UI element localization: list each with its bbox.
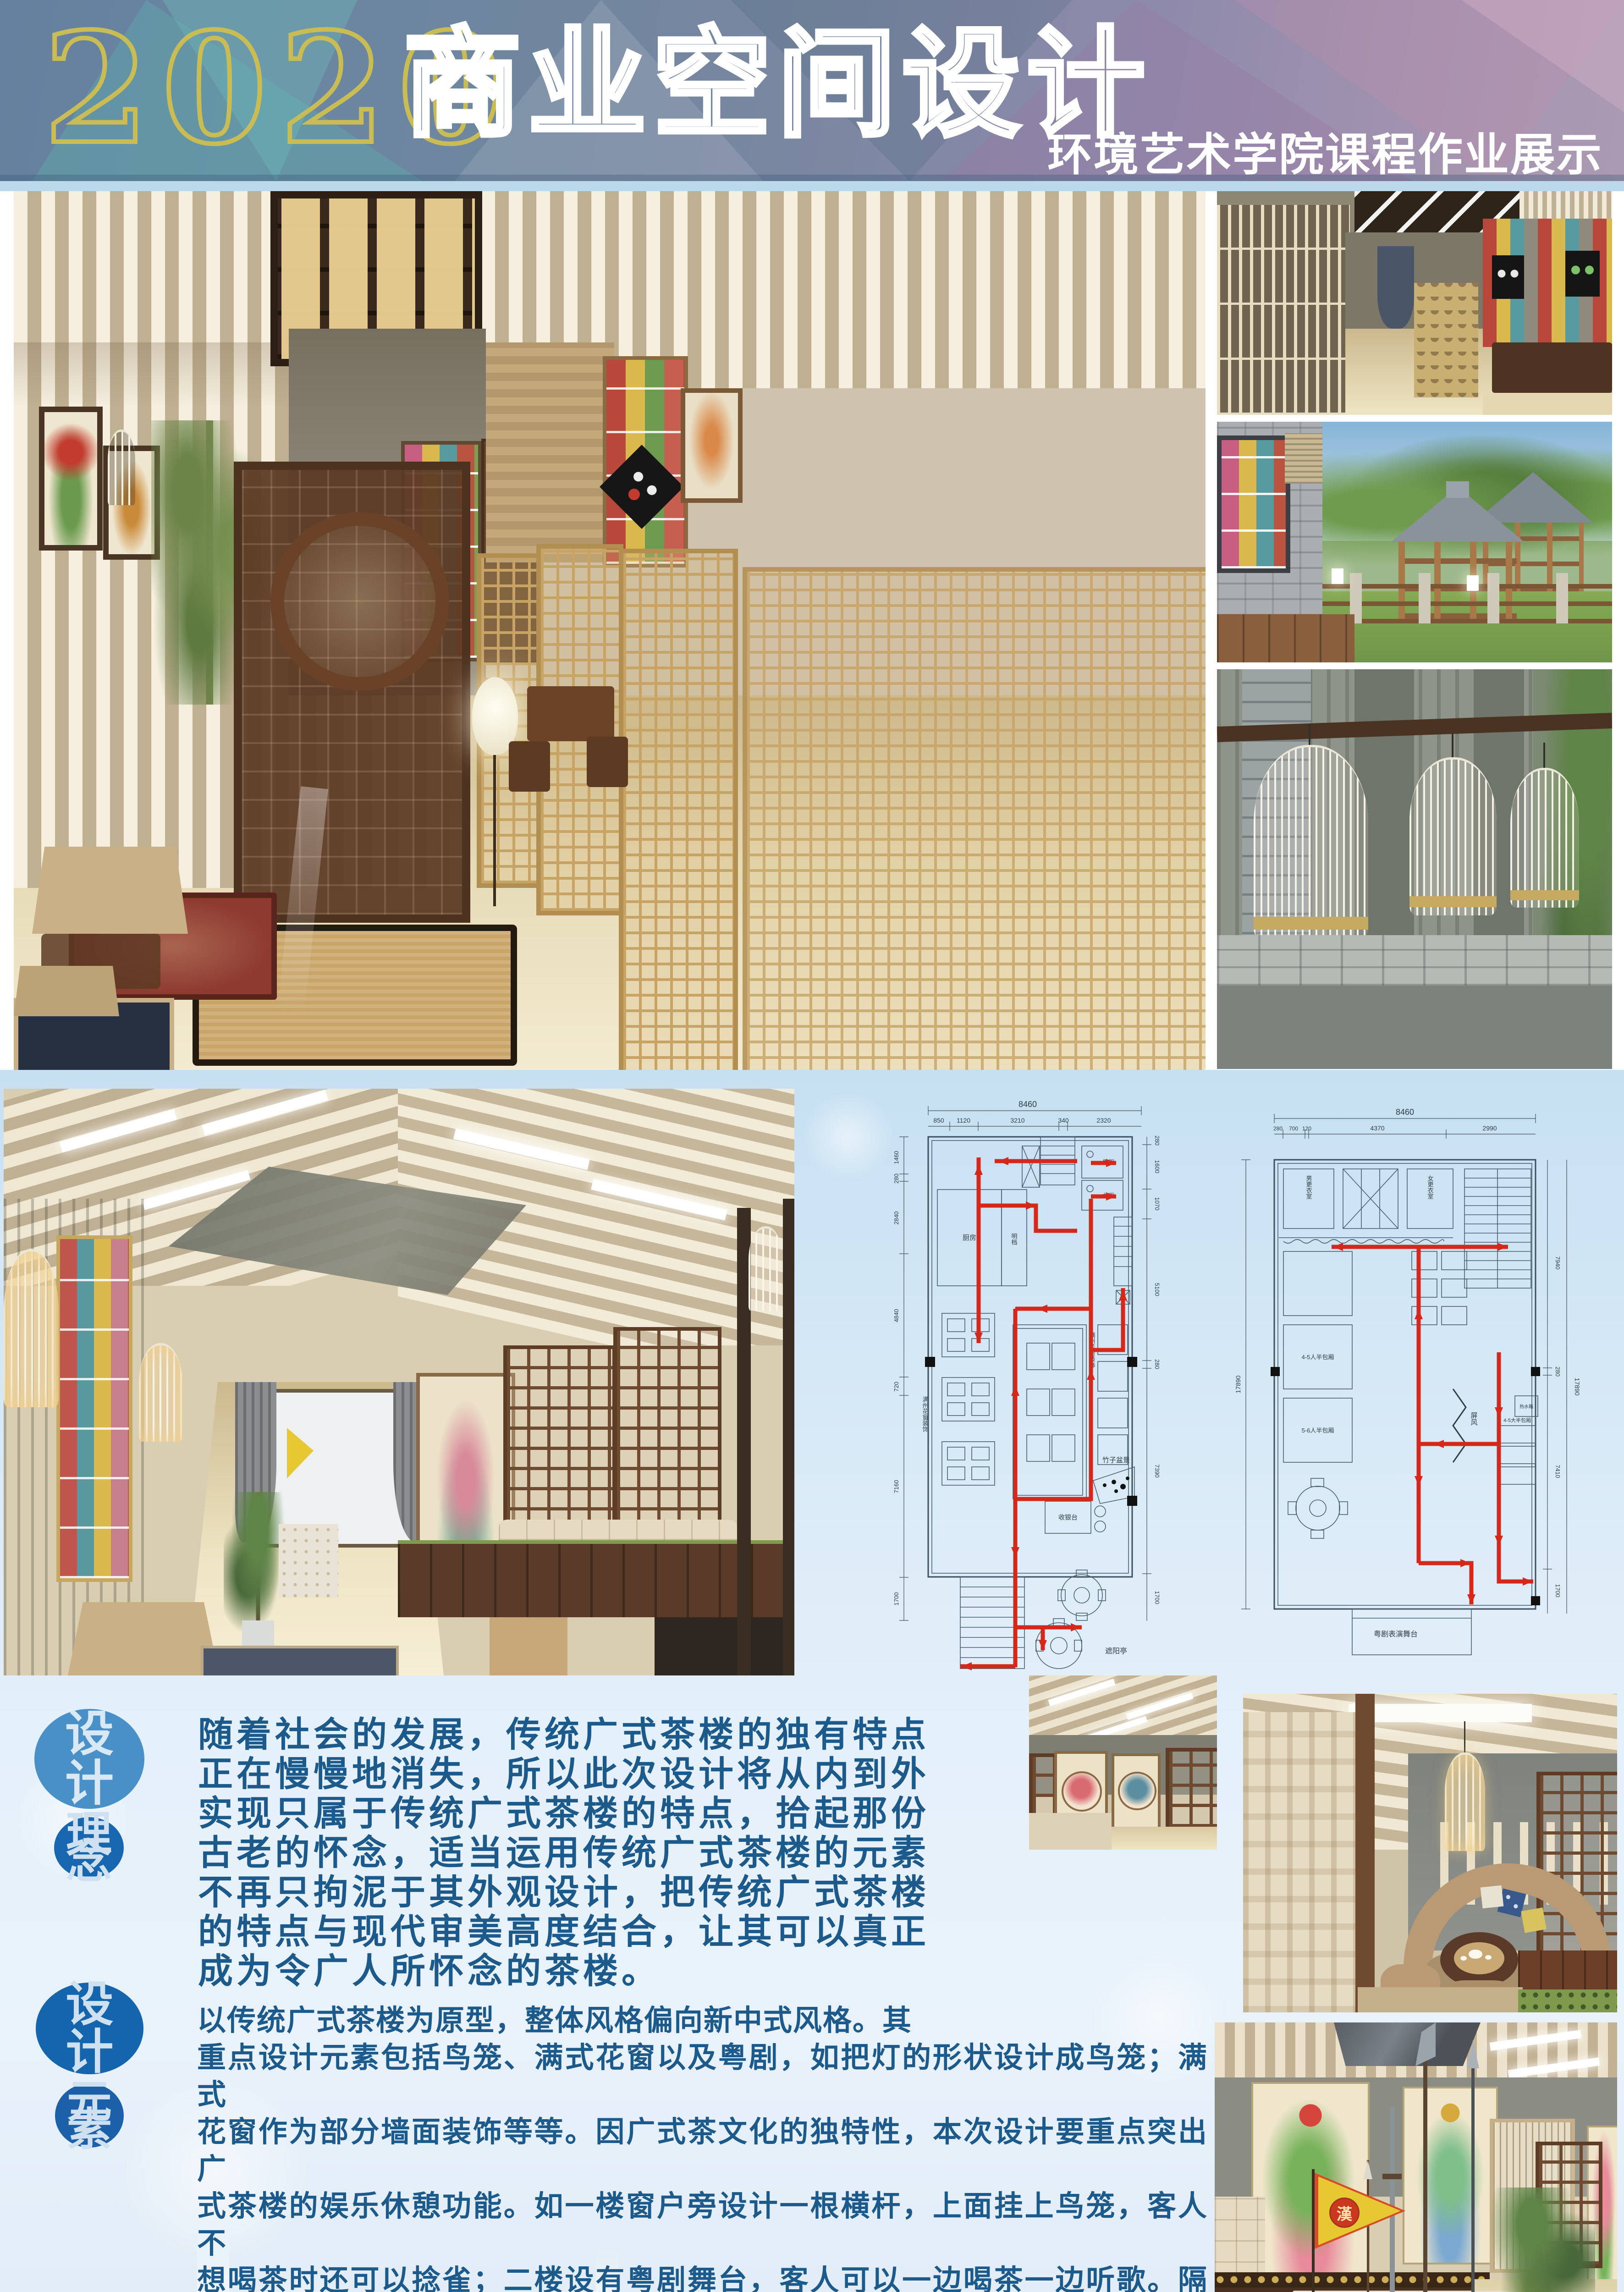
stage-mural-2 [1403, 2087, 1498, 2264]
booth-pillow-light [1481, 1885, 1504, 1909]
header-title: 商业空间设计 [403, 25, 1151, 143]
main-table-left-2 [14, 966, 119, 1016]
booth-teacup [1485, 1955, 1492, 1960]
corridor-gold-scale-screen [1414, 283, 1478, 397]
hall-walkway [398, 1540, 794, 1617]
render-stage-display: 漢 [1215, 2022, 1617, 2292]
render-birdcages-window [1217, 669, 1612, 1069]
plan2-dim: 17890 [1234, 1375, 1242, 1393]
booth-pendant-wire [1464, 1721, 1465, 1753]
plan2-dim: 280 [1273, 1125, 1283, 1132]
roundel-floor [1112, 1827, 1217, 1850]
corridor-floor-right [1483, 393, 1612, 415]
plan2-dim-total: 8460 [1396, 1107, 1414, 1117]
main-chair-right-2 [587, 737, 628, 787]
plan1-dim: 1460 [893, 1151, 900, 1164]
flag-character: 漢 [1337, 2202, 1352, 2224]
main-lantern-stand [493, 755, 496, 906]
plan2-dimensions: 8460 280 700 120 4370 2990 17890 7940 28… [1234, 1107, 1581, 1614]
plan1-dim: 720 [893, 1382, 900, 1392]
plan1-label-pavilion: 遮阳亭 [1105, 1647, 1127, 1655]
elements-badge-subtext: 元素 [66, 2088, 113, 2143]
booth-light-bar [1349, 1704, 1532, 1722]
birdcage-large [1254, 745, 1368, 940]
birdcage-band [1254, 917, 1368, 930]
main-table-left-1 [32, 847, 188, 934]
render-hall-interior [4, 1089, 794, 1675]
concept-badge-sub: 理念 [54, 1817, 124, 1879]
stage-booth [1215, 2197, 1265, 2284]
plan1-dim: 2840 [893, 1212, 900, 1225]
concept-paragraph: 随着社会的发展，传统广式茶楼的独有特点 正在慢慢地消失，所以此次设计将从内到外 … [198, 1715, 1009, 1991]
weapon-guandao-pole [1423, 2050, 1427, 2292]
header-subtitle: 环境艺术学院课程作业展示 [1047, 118, 1603, 183]
concept-badge-main: 设计 [34, 1709, 144, 1809]
roundel-portrait-1 [1062, 1771, 1102, 1812]
booth-wood-pillar [1355, 1694, 1375, 2012]
roundel-lattice-right [1166, 1748, 1217, 1831]
booth-carpet [1358, 1987, 1523, 2012]
corridor-mask-tile-2 [1565, 251, 1600, 297]
stage-marble-patch [1334, 2022, 1481, 2066]
plan2-label-mens-dressing: 男更衣室 [1305, 1175, 1312, 1199]
plan2-label-room45: 4-5人半包厢 [1302, 1354, 1334, 1361]
cages-ledge [1217, 935, 1612, 986]
hall-rug [201, 1646, 399, 1675]
corridor-curtain [1377, 246, 1414, 329]
garden-deck [1217, 614, 1354, 662]
garden-blind [1285, 433, 1322, 484]
elements-badge-main: 设计 [36, 1983, 143, 2074]
plan2-label-screen: 屏风 [1470, 1412, 1478, 1426]
plan2-dim: 700 [1289, 1125, 1298, 1132]
birdcage-band [1510, 890, 1579, 900]
hall-birdcage-lamp-2 [139, 1343, 182, 1442]
booth-birdcage-lamp [1445, 1752, 1485, 1851]
floor-plan-first-floor: 8460 850 1120 3210 340 2320 1460 280 284… [885, 1093, 1160, 1673]
plan1-label-window-decor: 满州花窗装饰 [922, 1396, 929, 1432]
gazebo-front-cupola [1446, 481, 1469, 498]
cage-hook [1452, 733, 1453, 759]
hall-table-cloth [68, 1602, 219, 1675]
plan2-dim: 1700 [1554, 1584, 1561, 1598]
plan1-dim: 280 [1154, 1359, 1160, 1369]
booth-pillow-mustard [1521, 1907, 1547, 1933]
roundel-booth [1029, 1813, 1112, 1850]
plan1-dim: 850 [933, 1117, 944, 1124]
corridor-mask-tile-1 [1492, 255, 1524, 299]
elements-paragraph: 以传统广式茶楼为原型，整体风格偏向新中式风格。其 重点设计元素包括鸟笼、满式花窗… [197, 2002, 1208, 2292]
plan2-label-womens-dressing: 女更衣室 [1427, 1175, 1434, 1199]
hall-tile-panel [56, 1235, 132, 1582]
birdcage-band [1409, 896, 1497, 907]
header-banner: 2020 商业空间设计 环境艺术学院课程作业展示 [0, 0, 1624, 181]
garden-stained-window [1217, 435, 1290, 573]
concept-badge-text: 设计 [64, 1709, 115, 1808]
plan1-dim: 4840 [893, 1309, 900, 1322]
garden-lamp [1332, 568, 1343, 584]
render-curved-booth [1243, 1694, 1617, 2012]
main-gold-screen-3 [619, 549, 738, 1070]
plan1-dim: 7160 [893, 1480, 900, 1493]
weapon-sword-guard [1382, 2174, 1402, 2179]
main-table-right [527, 686, 614, 741]
main-framed-opera-print-right [681, 388, 743, 503]
plan2-dim: 2990 [1482, 1124, 1497, 1132]
garden-lamp [1467, 575, 1479, 591]
plan1-dim: 1600 [1154, 1160, 1160, 1174]
plan1-dim: 340 [1058, 1117, 1069, 1124]
floor-plan-second-floor: 8460 280 700 120 4370 2990 17890 7940 28… [1215, 1096, 1586, 1669]
render-main-teahouse [14, 191, 1206, 1070]
plan2-label-room56: 5-6人半包厢 [1302, 1427, 1334, 1434]
roundel-portrait-2 [1118, 1772, 1156, 1810]
poster: 2020 商业空间设计 环境艺术学院课程作业展示 [0, 0, 1624, 2292]
main-carved-wall [486, 342, 614, 562]
plan1-label-counter: 明档 [1011, 1233, 1018, 1245]
plan2-dim: 7940 [1554, 1256, 1561, 1270]
stage-flagpole [1312, 2169, 1315, 2292]
booth-carved-wall [1243, 1712, 1355, 2012]
hall-birdcage-right [749, 1226, 783, 1311]
booth-green-trim [1518, 1989, 1617, 2012]
plan2-label-water-heater: 热水箱 [1519, 1404, 1533, 1410]
hall-plant-pot [242, 1620, 274, 1648]
plan1-dim: 5100 [1154, 1283, 1160, 1296]
elements-badge-sub: 元素 [55, 2083, 124, 2148]
stage-mural-1 [1251, 2082, 1370, 2283]
booth-teapot [1469, 1950, 1482, 1959]
plan2-dim: 4370 [1370, 1124, 1384, 1132]
flag-rosette: 漢 [1329, 2198, 1360, 2228]
elements-badge-text: 设计 [65, 1981, 115, 2076]
plan2-dim: 280 [1554, 1366, 1561, 1377]
hall-white-cabinet [279, 1524, 338, 1598]
weapon-spear-pole [1471, 2066, 1475, 2292]
plan1-dim: 3210 [1010, 1117, 1024, 1124]
plan1-room-labels: 厨房 明档 男厕 女厕 满州花窗装饰 满州花窗装饰 收银台 竹子盆景 遮阳亭 [922, 1159, 1130, 1655]
plan2-label-room45L: 4-5大半包厢 [1503, 1417, 1531, 1423]
plan2-dim: 7410 [1554, 1465, 1561, 1478]
plan1-dim: 1700 [893, 1592, 900, 1606]
hall-frame-post [783, 1199, 794, 1675]
corridor-cage-screen [1217, 205, 1350, 415]
corridor-bench [1492, 342, 1612, 393]
bokeh-circle [802, 1091, 894, 1183]
header-divider-strip [0, 181, 1624, 191]
plan1-dim: 1700 [1154, 1591, 1160, 1604]
plan1-dim: 2320 [1096, 1117, 1111, 1124]
plan1-label-bamboo: 竹子盆景 [1102, 1456, 1130, 1464]
cage-hook [1543, 743, 1545, 769]
birdcage-medium [1409, 757, 1497, 915]
main-birdcage [108, 430, 135, 505]
main-framed-opera-print-1 [39, 407, 103, 551]
concept-badge-subtext: 理念 [65, 1819, 113, 1876]
plan2-dim: 17890 [1574, 1378, 1581, 1396]
plan1-walls [925, 1137, 1137, 1669]
weapon-sword [1390, 2107, 1395, 2292]
hall-birdcage-lamp-1 [4, 1249, 59, 1407]
main-moon-gate-ring [270, 512, 449, 691]
plan1-label-cashier: 收银台 [1058, 1514, 1078, 1521]
render-roundel-panels [1029, 1675, 1217, 1850]
booth-table [1440, 1932, 1518, 1987]
main-gold-screen-4 [743, 567, 1206, 1070]
plan1-dim: 280 [1154, 1135, 1160, 1146]
render-garden-gazebo [1217, 422, 1612, 662]
main-chair-right-1 [509, 741, 550, 792]
plan1-label-kitchen: 厨房 [963, 1234, 976, 1242]
plan1-dim: 7390 [1154, 1465, 1160, 1478]
booth-teacup [1460, 1956, 1467, 1961]
cages-ledge-base [1217, 986, 1612, 1069]
plan1-dim-total: 8460 [1018, 1100, 1037, 1109]
birdcage-small [1510, 768, 1579, 908]
plan1-dim: 1070 [1154, 1197, 1160, 1211]
plan2-dim: 120 [1302, 1125, 1311, 1132]
render-corridor-masks [1217, 191, 1612, 415]
stage-gold-trim [1215, 2272, 1490, 2288]
plan1-dim: 1120 [957, 1117, 970, 1124]
stage-bamboo [1490, 2187, 1595, 2292]
plan1-dim: 280 [893, 1174, 900, 1184]
cage-hook [1309, 724, 1310, 747]
plan2-label-stage: 粤剧表演舞台 [1374, 1630, 1418, 1638]
